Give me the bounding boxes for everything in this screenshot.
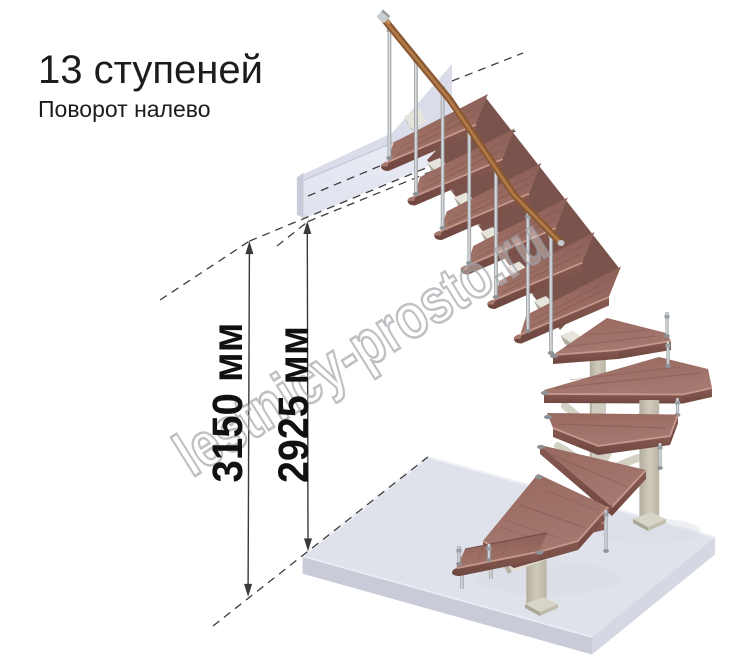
svg-text:3150 мм: 3150 мм (204, 323, 252, 483)
svg-text:Поворот налево: Поворот налево (38, 96, 211, 122)
svg-text:2925 мм: 2925 мм (270, 326, 318, 483)
svg-text:13 ступеней: 13 ступеней (38, 48, 263, 92)
